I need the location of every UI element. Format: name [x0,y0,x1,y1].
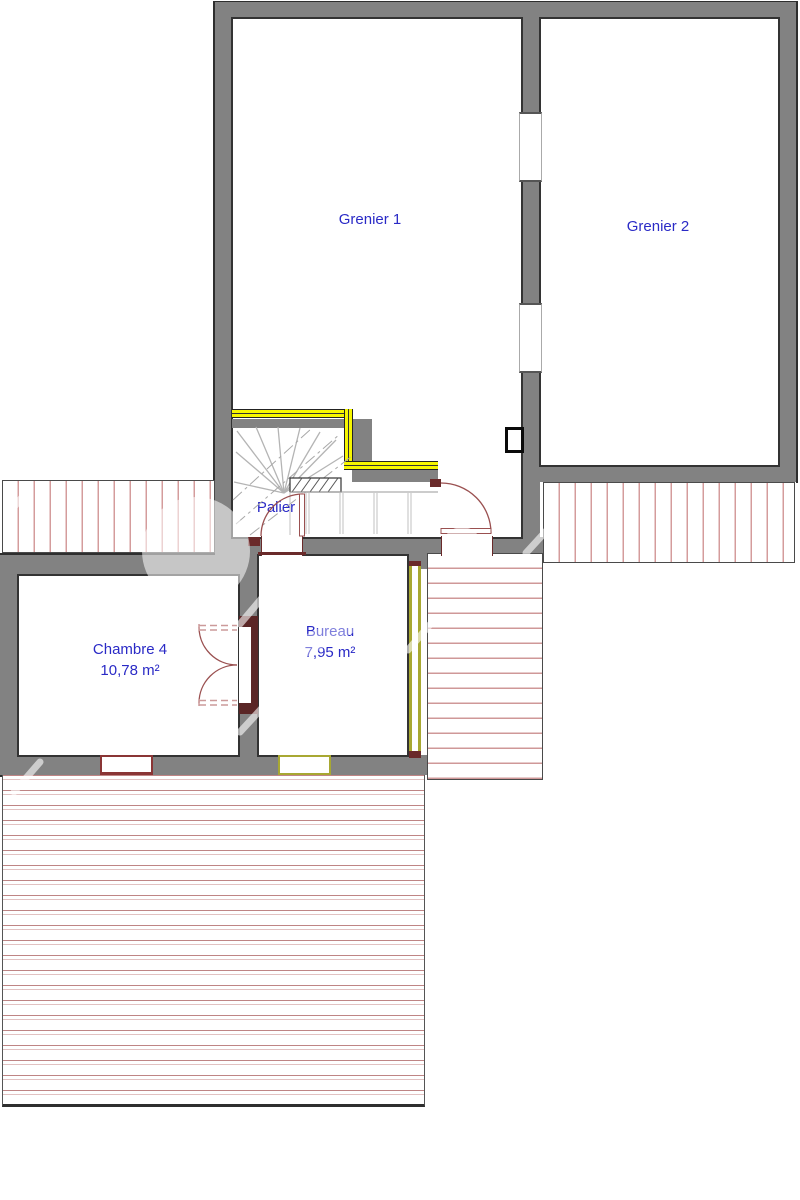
outer-edge-right [796,1,798,483]
door-threshold-bureau [258,552,306,555]
grenier1-label-text: Grenier 1 [339,211,402,228]
wall-rooms-top [0,555,270,575]
grenier2-label-text: Grenier 2 [627,218,690,235]
wall-divider-greniers [522,18,540,537]
palier-label-text: Palier [257,499,295,516]
door-jamb-palier-left [248,537,260,546]
room-label-palier: Palier [216,497,336,518]
roof-hatch-middle-strip [427,553,543,780]
chambre4-area-text: 10,78 m² [40,660,220,681]
floorplan-canvas: Grenier 1 Grenier 2 Palier Chambre 4 10,… [0,0,800,1200]
kneewall-lower [352,470,438,482]
guardrail-lower-run [344,461,438,470]
roof-hatch-left-strip [2,480,215,553]
room-grenier2 [539,17,780,467]
window-bureau [278,755,331,775]
wall-grenier2-bottom [540,465,796,482]
bureau-label-text: Bureau [255,621,405,642]
glazing-bureau-right [409,566,421,758]
wall-chambre4-left [0,555,18,775]
room-label-grenier2: Grenier 2 [588,216,728,237]
opening-divider-lower [519,303,542,373]
roof-hatch-bottom-area [2,775,425,1107]
door-jamb-corridor-upper [430,479,441,487]
wall-right-outer [779,2,796,482]
opening-divider-upper [519,112,542,182]
door-jamb-chambre4-bottom [239,703,258,714]
wall-top [215,2,796,18]
bureau-area-text: 7,95 m² [255,642,405,663]
guardrail-top-run [232,409,353,418]
window-chambre4 [100,755,153,775]
room-label-chambre4: Chambre 4 10,78 m² [40,639,220,681]
flue-box [505,427,524,453]
glazing-cap-bottom [409,751,421,758]
room-label-bureau: Bureau 7,95 m² [255,621,405,663]
roof-hatch-right-strip [543,482,795,563]
opening-door-corridor [441,536,493,556]
chambre4-label-text: Chambre 4 [40,639,220,660]
room-label-grenier1: Grenier 1 [300,209,440,230]
wall-rooms-bottom [0,755,427,775]
wall-left-upper [215,2,232,555]
